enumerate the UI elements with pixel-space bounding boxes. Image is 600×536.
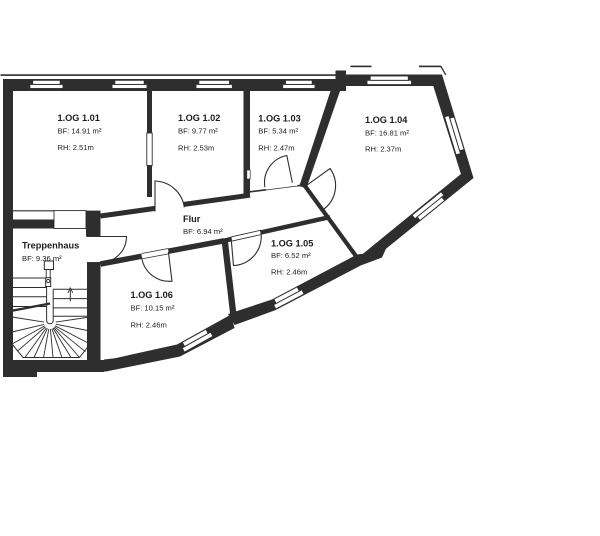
svg-text:BF: 10.15 m²: BF: 10.15 m² [131,304,175,313]
svg-text:RH: 2.37m: RH: 2.37m [365,145,401,154]
svg-text:RH: 2.47m: RH: 2.47m [258,144,294,153]
svg-text:Flur: Flur [183,214,201,224]
svg-text:1.OG 1.05: 1.OG 1.05 [271,238,313,248]
svg-text:BF: 5.34 m²: BF: 5.34 m² [258,127,298,136]
svg-text:BF: 9.77 m²: BF: 9.77 m² [178,126,218,135]
svg-text:1.OG 1.03: 1.OG 1.03 [258,114,300,124]
svg-text:BF: 9.36 m²: BF: 9.36 m² [22,254,62,263]
svg-text:1.OG 1.01: 1.OG 1.01 [58,113,100,123]
svg-text:BF: 16.81 m²: BF: 16.81 m² [365,129,409,138]
svg-text:RH: 2.51m: RH: 2.51m [58,143,94,152]
svg-text:RH: 2.53m: RH: 2.53m [178,143,214,152]
svg-text:BF: 6.94 m²: BF: 6.94 m² [183,227,223,236]
svg-text:Treppenhaus: Treppenhaus [22,241,79,251]
svg-text:BF: 6.52 m²: BF: 6.52 m² [271,251,311,260]
svg-text:1.OG 1.04: 1.OG 1.04 [365,115,408,125]
svg-text:BF: 14.91 m²: BF: 14.91 m² [58,126,102,135]
svg-text:1.OG 1.06: 1.OG 1.06 [131,290,173,300]
svg-text:1.OG 1.02: 1.OG 1.02 [178,113,220,123]
svg-text:RH: 2.46m: RH: 2.46m [131,321,167,330]
svg-text:RH: 2.46m: RH: 2.46m [271,267,307,276]
